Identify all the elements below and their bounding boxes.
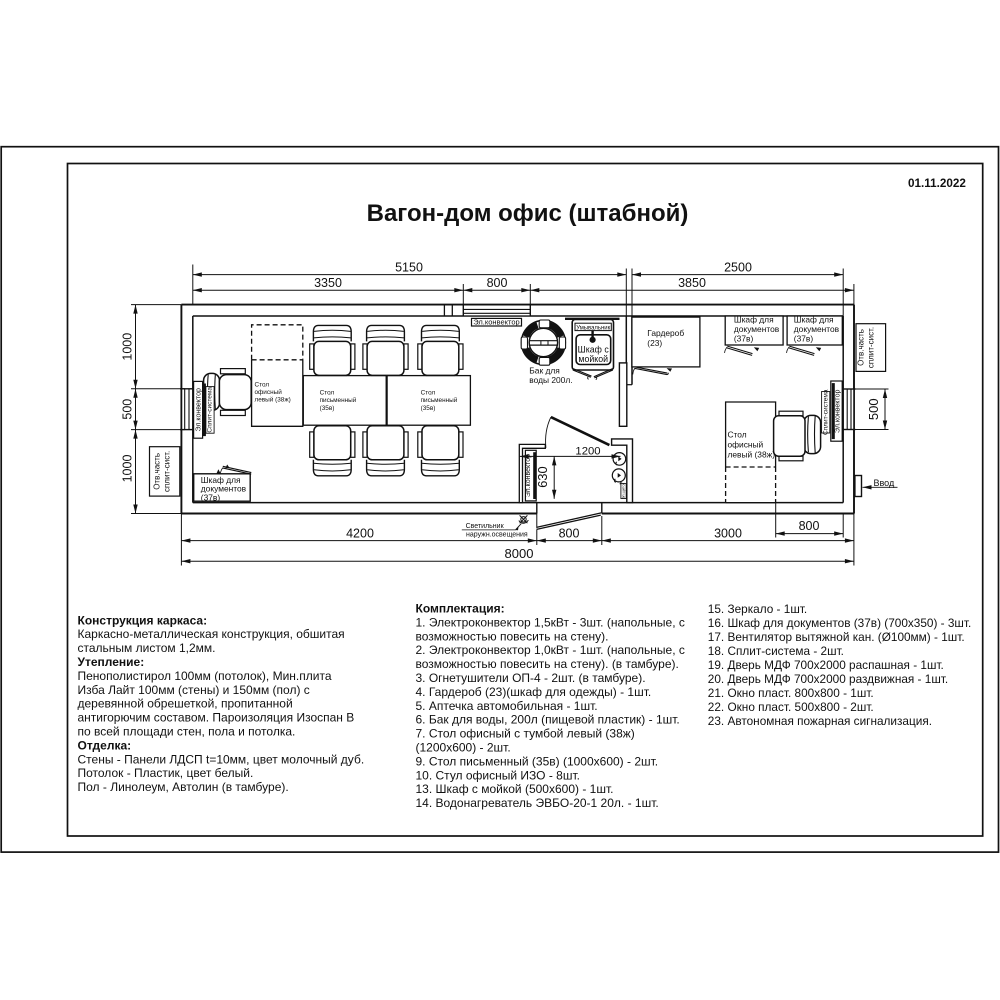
svg-text:Шкаф для: Шкаф для (794, 314, 834, 324)
svg-text:левый (38ж): левый (38ж) (255, 396, 291, 404)
svg-text:Бак для: Бак для (529, 365, 559, 375)
svg-text:Шкаф для: Шкаф для (734, 314, 774, 324)
svg-text:21. Окно пласт. 800х800 - 1шт.: 21. Окно пласт. 800х800 - 1шт. (708, 686, 874, 700)
svg-text:15. Зеркало - 1шт.: 15. Зеркало - 1шт. (708, 602, 807, 616)
svg-text:стальным листом 1,2мм.: стальным листом 1,2мм. (78, 641, 216, 655)
svg-text:Шкаф с: Шкаф с (578, 344, 610, 354)
svg-text:13. Шкаф с мойкой (500х600) -: 13. Шкаф с мойкой (500х600) - 1шт. (416, 782, 614, 796)
svg-text:7. Стол офисный с тумбой левый: 7. Стол офисный с тумбой левый (38ж) (416, 727, 635, 741)
svg-text:Эл.конвектор: Эл.конвектор (525, 454, 532, 497)
svg-text:документов: документов (794, 324, 840, 334)
svg-text:письменный: письменный (320, 396, 357, 404)
svg-text:14. Водонагреватель ЭВБО-20-1: 14. Водонагреватель ЭВБО-20-1 20л. - 1шт… (416, 796, 659, 810)
svg-text:3. Огнетушители ОП-4 - 2шт. (в: 3. Огнетушители ОП-4 - 2шт. (в тамбуре). (416, 671, 646, 685)
svg-text:Изба Лайт 100мм (стены) и 150м: Изба Лайт 100мм (стены) и 150мм (пол) с (78, 683, 310, 697)
svg-text:(1200х600) - 2шт.: (1200х600) - 2шт. (416, 741, 511, 755)
svg-text:(23): (23) (647, 338, 662, 348)
svg-text:возможностью повесить на стену: возможностью повесить на стену). (416, 629, 609, 643)
svg-text:Стены - Панели ЛДСП t=10мм, цв: Стены - Панели ЛДСП t=10мм, цвет молочны… (78, 752, 365, 766)
svg-text:(37в): (37в) (794, 334, 814, 344)
svg-text:(37в): (37в) (734, 334, 754, 344)
svg-text:4. Гардероб (23)(шкаф для одеж: 4. Гардероб (23)(шкаф для одежды) - 1шт. (416, 685, 652, 699)
svg-text:(35в): (35в) (320, 405, 335, 412)
svg-text:Пенополистирол 100мм (потолок): Пенополистирол 100мм (потолок), Мин.плит… (78, 669, 332, 683)
svg-text:800: 800 (559, 527, 580, 541)
svg-text:19. Дверь МДФ 700х2000 распашн: 19. Дверь МДФ 700х2000 распашная - 1шт. (708, 658, 944, 672)
svg-text:2500: 2500 (724, 261, 752, 275)
svg-text:630: 630 (535, 466, 550, 487)
svg-text:Потолок - Пластик, цвет белый.: Потолок - Пластик, цвет белый. (78, 766, 254, 780)
svg-text:Отв.часть: Отв.часть (857, 329, 866, 366)
svg-text:16. Шкаф для документов (37в): 16. Шкаф для документов (37в) (700х350) … (708, 616, 971, 630)
svg-text:офисный: офисный (728, 439, 764, 449)
svg-text:4200: 4200 (346, 527, 374, 541)
svg-text:500: 500 (121, 399, 135, 420)
svg-text:(35в): (35в) (421, 405, 436, 412)
svg-text:20. Дверь МДФ 700х2000 раздвиж: 20. Дверь МДФ 700х2000 раздвижная - 1шт. (708, 672, 948, 686)
svg-text:9. Стол письменный (35в) (1000: 9. Стол письменный (35в) (1000х600) - 2ш… (416, 754, 659, 768)
svg-text:Каркасно-металлическая констру: Каркасно-металлическая конструкция, обши… (78, 627, 345, 641)
svg-text:Вагон-дом офис (штабной): Вагон-дом офис (штабной) (367, 200, 689, 227)
svg-text:5. Аптечка автомобильная - 1шт: 5. Аптечка автомобильная - 1шт. (416, 699, 598, 713)
svg-text:Сплит-система: Сплит-система (822, 389, 829, 435)
svg-text:3000: 3000 (714, 527, 742, 541)
svg-text:Стол: Стол (255, 382, 270, 389)
svg-text:наружн.освещения: наружн.освещения (466, 532, 528, 539)
svg-text:Сплит-система: Сплит-система (207, 387, 214, 433)
svg-text:18. Сплит-система - 2шт.: 18. Сплит-система - 2шт. (708, 644, 844, 658)
svg-text:17. Вентилятор вытяжной кан. (: 17. Вентилятор вытяжной кан. (Ø100мм) - … (708, 630, 965, 644)
svg-text:6. Бак для воды, 200л (пищевой: 6. Бак для воды, 200л (пищевой пластик) … (416, 713, 680, 727)
svg-text:Эл.конвектор: Эл.конвектор (834, 390, 841, 433)
svg-text:3850: 3850 (678, 276, 706, 290)
svg-text:Комплектация:: Комплектация: (416, 602, 505, 616)
svg-text:сплит-сист.: сплит-сист. (867, 327, 876, 368)
svg-text:Светильник: Светильник (466, 523, 505, 530)
svg-text:документов: документов (734, 324, 780, 334)
svg-text:деревянной обрешеткой, пропита: деревянной обрешеткой, пропитанной (78, 697, 293, 711)
svg-text:мойкой: мойкой (578, 354, 608, 364)
svg-text:Конструкция каркаса:: Конструкция каркаса: (78, 613, 208, 627)
svg-text:10. Стул офисный ИЗО - 8шт.: 10. Стул офисный ИЗО - 8шт. (416, 768, 580, 782)
svg-text:Пол - Линолеум, Автолин (в там: Пол - Линолеум, Автолин (в тамбуре). (78, 780, 289, 794)
svg-text:офисный: офисный (255, 388, 283, 396)
svg-text:Умывальник: Умывальник (576, 324, 610, 331)
svg-text:Эл.щиток: Эл.щиток (621, 482, 625, 499)
svg-text:Эл.конвектор: Эл.конвектор (195, 388, 202, 431)
svg-text:22. Окно пласт. 500х800 - 2шт.: 22. Окно пласт. 500х800 - 2шт. (708, 700, 874, 714)
svg-text:3350: 3350 (314, 276, 342, 290)
svg-text:Стол: Стол (728, 429, 747, 439)
svg-text:(37в): (37в) (201, 492, 221, 502)
svg-text:левый (38ж): левый (38ж) (728, 449, 776, 459)
svg-text:500: 500 (866, 398, 881, 420)
svg-text:Эл.конвектор: Эл.конвектор (473, 318, 519, 327)
svg-text:возможностью повесить на стену: возможностью повесить на стену). (в тамб… (416, 657, 679, 671)
svg-text:23. Автономная пожарная сигнал: 23. Автономная пожарная сигнализация. (708, 714, 932, 728)
svg-text:1. Электроконвектор 1,5кВт - 3: 1. Электроконвектор 1,5кВт - 3шт. (напол… (416, 615, 685, 629)
svg-text:1200: 1200 (575, 446, 600, 458)
svg-text:сплит-сист.: сплит-сист. (162, 451, 171, 492)
svg-text:Отв.часть: Отв.часть (153, 453, 162, 490)
svg-text:Стол: Стол (320, 390, 335, 397)
svg-text:5150: 5150 (395, 261, 423, 275)
svg-text:Ввод: Ввод (874, 478, 895, 488)
svg-text:01.11.2022: 01.11.2022 (908, 177, 966, 190)
svg-text:Стол: Стол (421, 390, 436, 397)
svg-text:Отделка:: Отделка: (78, 738, 132, 752)
svg-text:письменный: письменный (421, 396, 458, 404)
svg-text:8000: 8000 (505, 546, 534, 561)
svg-text:2. Электроконвектор 1,0кВт - 1: 2. Электроконвектор 1,0кВт - 1шт. (напол… (416, 643, 685, 657)
svg-text:Гардероб: Гардероб (647, 328, 684, 338)
svg-text:1000: 1000 (121, 455, 135, 483)
svg-text:воды 200л.: воды 200л. (529, 375, 572, 385)
svg-text:800: 800 (799, 519, 820, 533)
svg-text:Утепление:: Утепление: (78, 655, 145, 669)
svg-text:800: 800 (487, 276, 508, 290)
svg-text:1000: 1000 (121, 333, 135, 361)
svg-text:по всей площади стен, пола и п: по всей площади стен, пола и потолка. (78, 725, 296, 739)
svg-text:антигорючим составом. Пароизол: антигорючим составом. Пароизоляция Изосп… (78, 711, 355, 725)
